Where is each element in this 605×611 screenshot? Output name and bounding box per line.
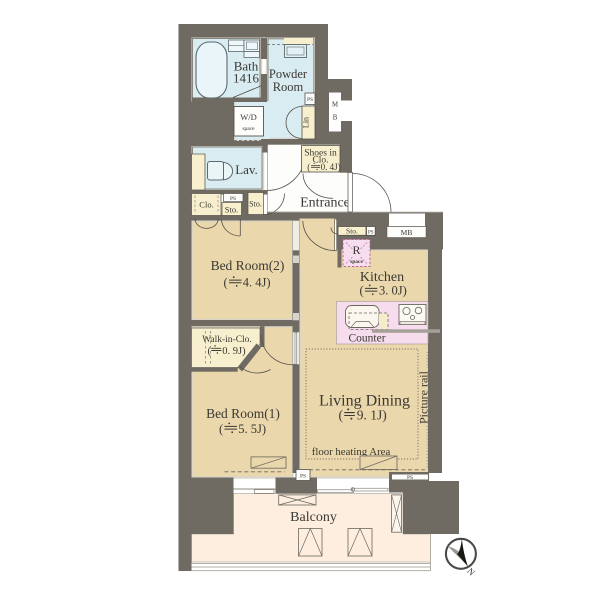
svg-text:Room: Room <box>273 80 304 94</box>
svg-text:Lin: Lin <box>302 117 311 128</box>
svg-text:Sto.: Sto. <box>249 200 262 209</box>
svg-text:PS: PS <box>307 97 313 103</box>
svg-text:B: B <box>333 115 338 122</box>
svg-text:9. 1J): 9. 1J) <box>357 408 387 423</box>
svg-text:4. 4J): 4. 4J) <box>243 276 271 290</box>
svg-text:Bed Room(1): Bed Room(1) <box>206 406 280 421</box>
svg-text:Powder: Powder <box>269 67 308 81</box>
svg-text:Walk-in-Clo.: Walk-in-Clo. <box>202 335 252 345</box>
svg-text:Sto.: Sto. <box>225 205 238 215</box>
svg-text:space: space <box>242 126 255 132</box>
svg-text:1416: 1416 <box>233 71 260 86</box>
svg-text:PS: PS <box>407 475 413 481</box>
svg-text:(: ( <box>224 276 228 290</box>
svg-text:MB: MB <box>401 228 413 237</box>
svg-text:(: ( <box>307 162 310 172</box>
svg-text:PS: PS <box>300 474 306 480</box>
svg-text:(: ( <box>219 422 223 436</box>
svg-text:Balcony: Balcony <box>290 510 337 525</box>
svg-text:space: space <box>350 259 363 265</box>
svg-text:Sto.: Sto. <box>346 227 358 236</box>
svg-text:Clo.: Clo. <box>199 200 213 210</box>
svg-text:Entrance: Entrance <box>300 196 350 211</box>
svg-text:5. 5J): 5. 5J) <box>238 422 266 436</box>
svg-text:(: ( <box>360 284 364 298</box>
svg-text:Lav.: Lav. <box>235 162 258 177</box>
svg-text:Bed Room(2): Bed Room(2) <box>211 258 285 273</box>
svg-text:(: ( <box>339 408 344 423</box>
svg-text:0. 9J): 0. 9J) <box>222 346 246 357</box>
svg-text:0. 4J): 0. 4J) <box>321 162 341 172</box>
svg-text:Picture rail: Picture rail <box>417 370 431 424</box>
svg-text:R: R <box>352 243 360 257</box>
svg-text:W/D: W/D <box>240 112 257 122</box>
svg-text:Counter: Counter <box>348 333 385 345</box>
svg-text:PS: PS <box>368 230 374 235</box>
svg-text:PS: PS <box>230 196 236 202</box>
svg-text:3. 0J): 3. 0J) <box>379 284 407 298</box>
svg-text:M: M <box>332 102 338 109</box>
